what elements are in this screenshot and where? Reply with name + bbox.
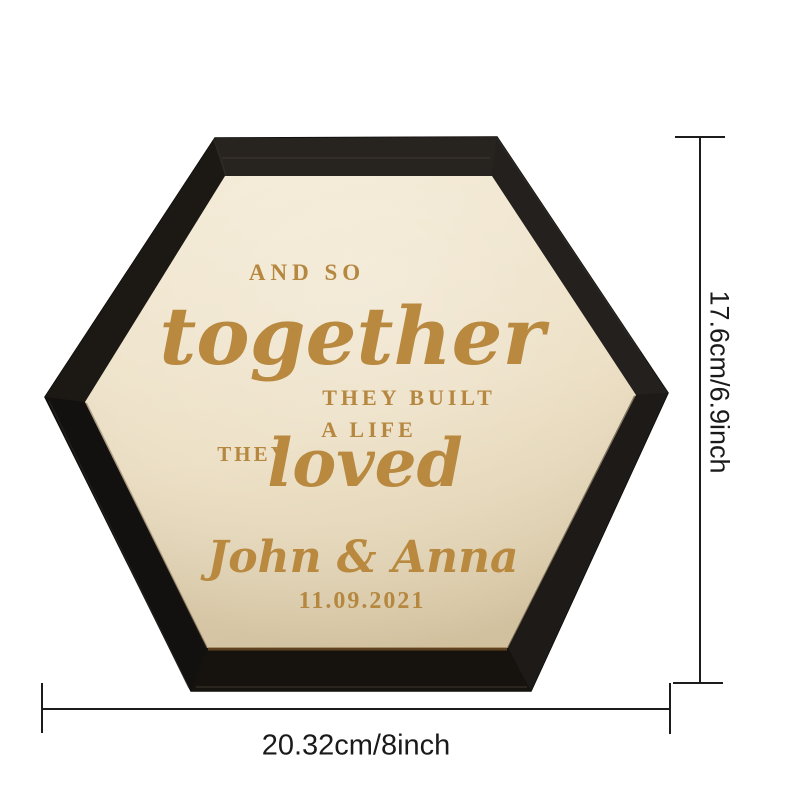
height-dimension-tick-bottom	[673, 682, 723, 684]
product-photo: AND SO together THEY BUILT A LIFE THEY l…	[0, 0, 800, 800]
quote-line-and-so: AND SO	[249, 261, 365, 284]
height-dimension-label: 17.6cm/6.9inch	[704, 290, 735, 473]
height-dimension-tick-top	[675, 136, 725, 138]
engraving-layer: AND SO together THEY BUILT A LIFE THEY l…	[0, 0, 800, 800]
width-dimension-tick-right	[669, 683, 671, 734]
engraved-names: John & Anna	[207, 536, 518, 580]
engraved-date: 11.09.2021	[299, 589, 426, 613]
width-dimension-label: 20.32cm/8inch	[262, 730, 451, 763]
width-dimension-line	[42, 708, 671, 710]
width-dimension-tick-left	[41, 683, 43, 733]
quote-line-together: together	[159, 296, 544, 376]
quote-line-they-built: THEY BUILT	[322, 387, 495, 409]
height-dimension-line	[699, 137, 701, 684]
quote-line-loved: loved	[267, 430, 463, 496]
